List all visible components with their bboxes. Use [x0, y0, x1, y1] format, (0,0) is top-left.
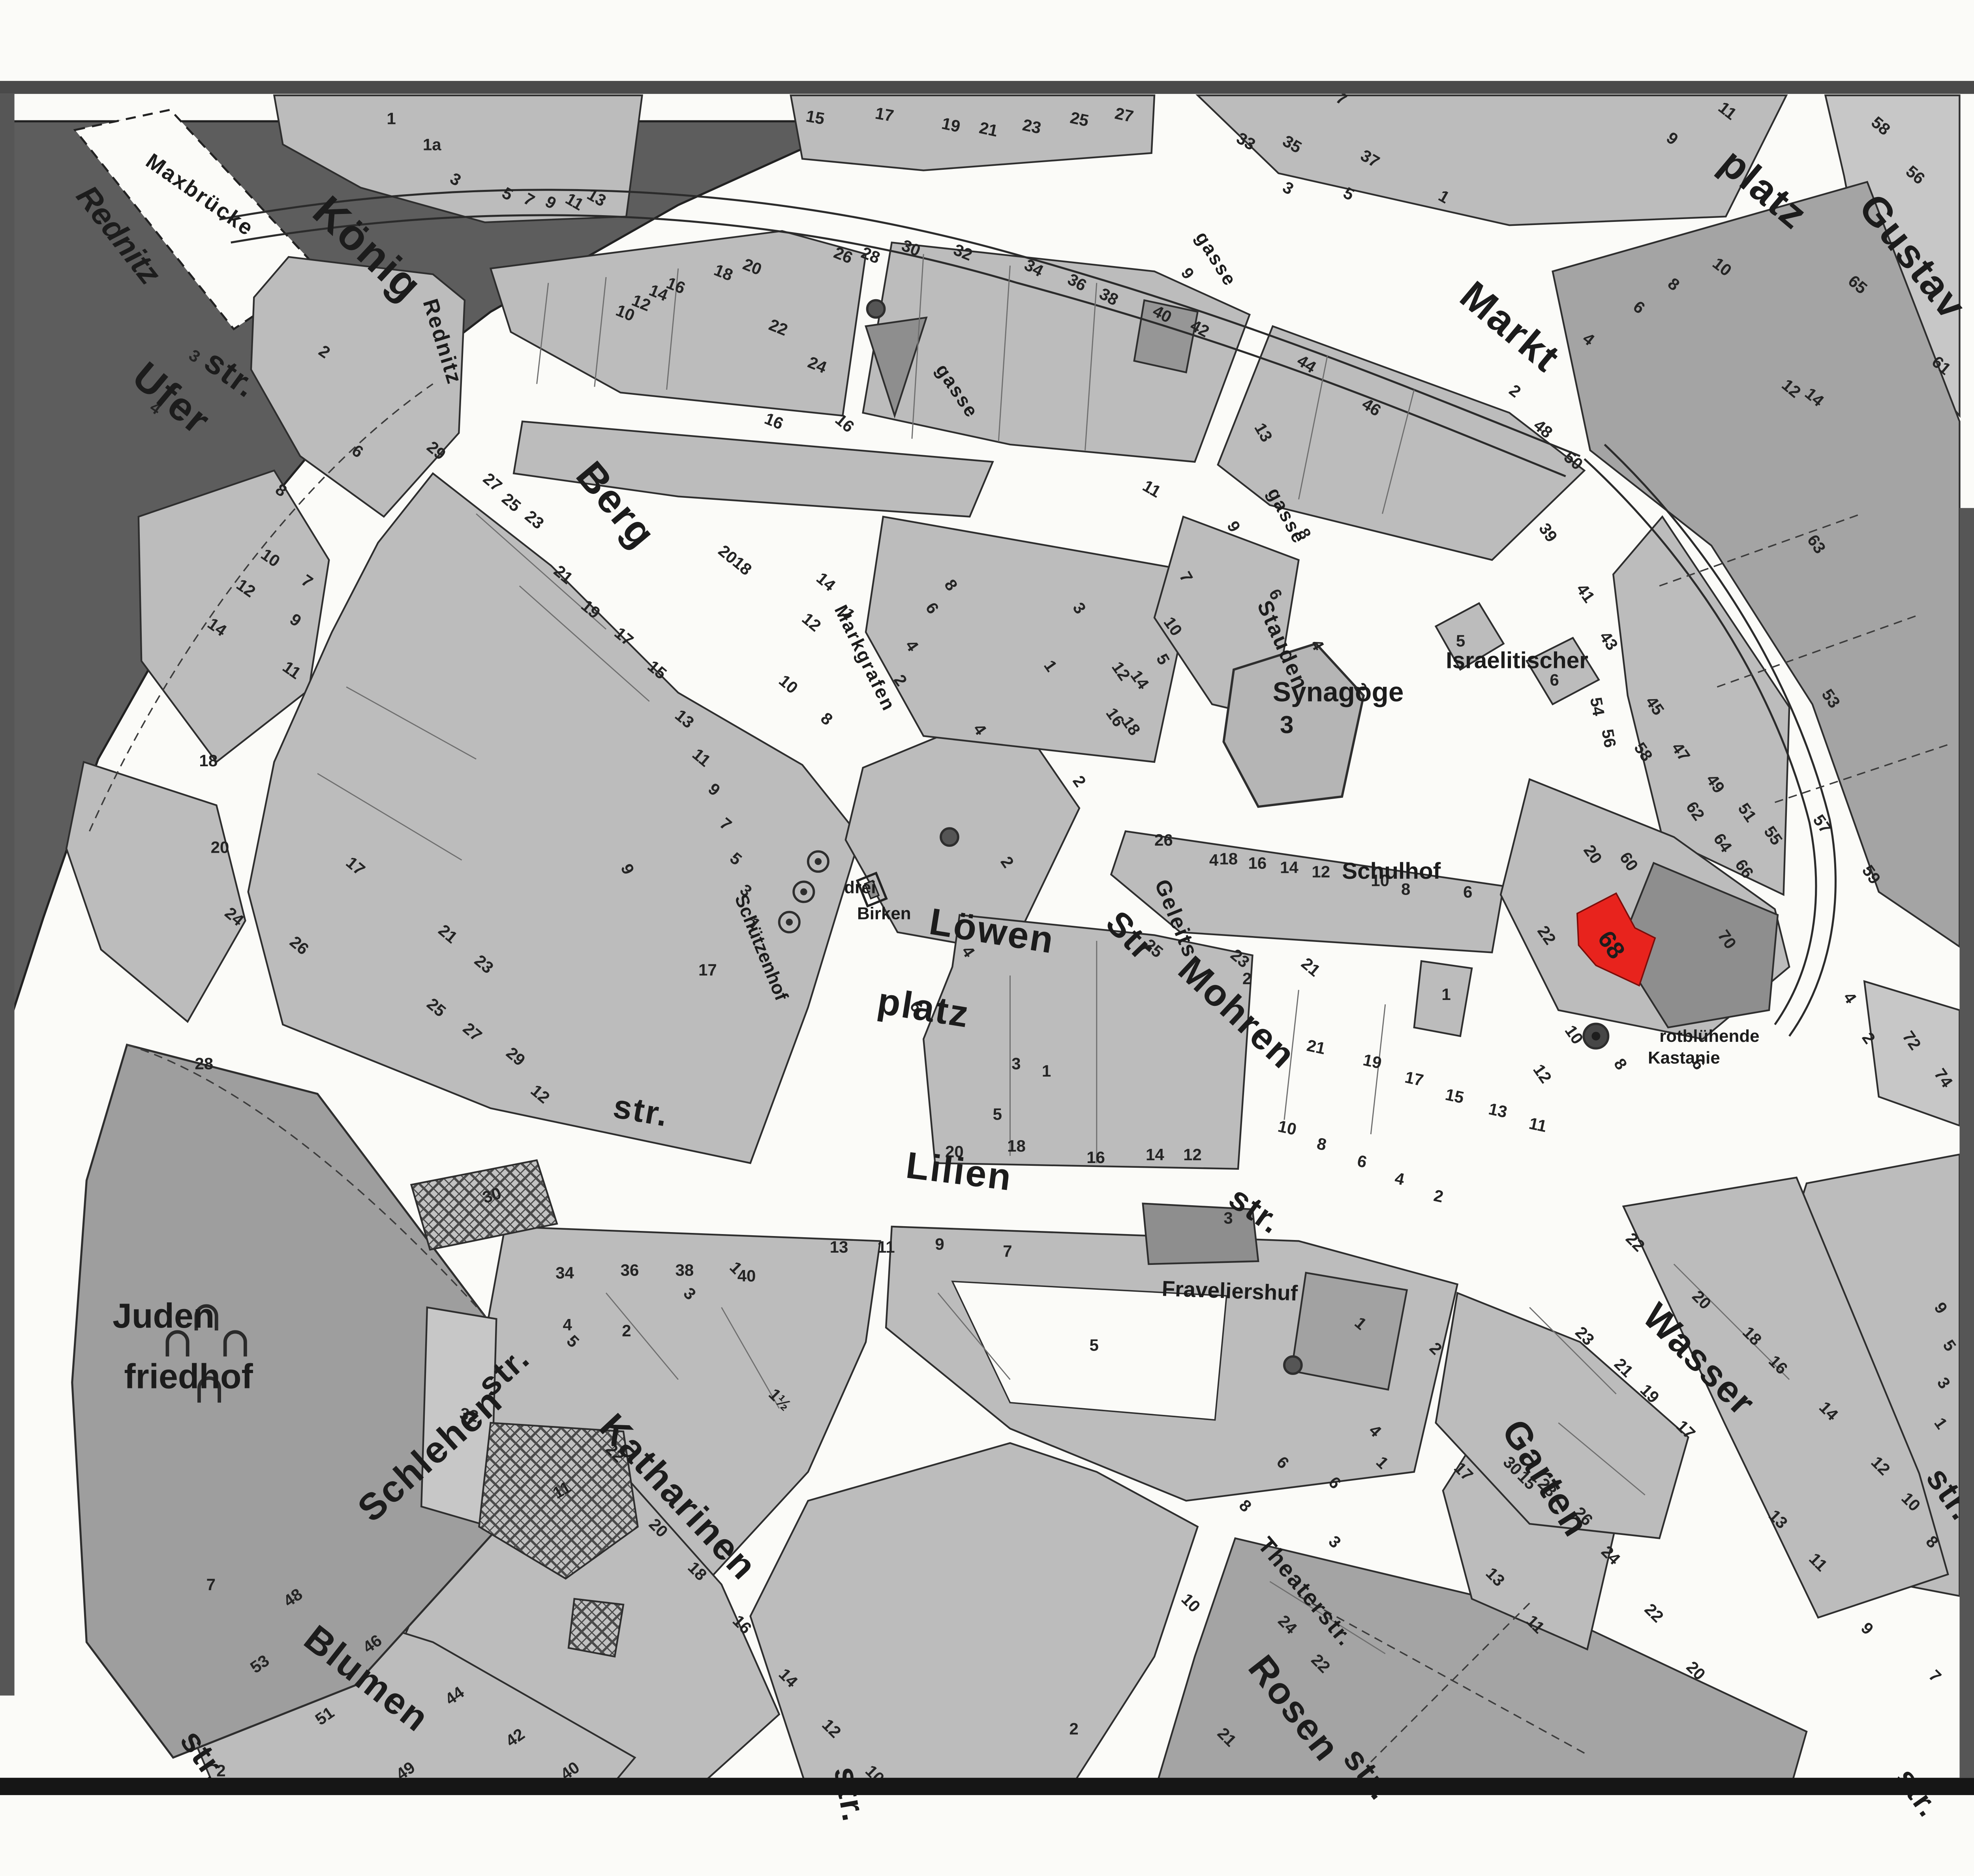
house-number: 14: [1280, 858, 1298, 877]
house-number: 12: [1183, 1145, 1202, 1164]
hatched-parcel-small: [569, 1599, 623, 1657]
birch-tree-icon: [800, 888, 807, 895]
house-number: 3: [1325, 1532, 1345, 1552]
house-number: 13: [1487, 1099, 1509, 1122]
house-number: 20: [211, 838, 229, 856]
house-number: 9: [935, 1234, 944, 1253]
city-block: [1198, 95, 1786, 225]
place-label: Israelitischer: [1446, 648, 1588, 673]
place-label: drei: [844, 878, 876, 897]
place-label: rotblühende: [1659, 1026, 1759, 1046]
house-number: 12: [799, 609, 825, 635]
house-number: 28: [195, 1054, 213, 1073]
house-number: 19: [940, 114, 962, 136]
house-number: 1: [1441, 985, 1450, 1004]
street-label: Markt: [1452, 272, 1569, 381]
place-label: friedhof: [124, 1357, 253, 1396]
house-number: 38: [676, 1261, 694, 1279]
house-number: 25: [1068, 108, 1090, 130]
house-number: 7: [1925, 1666, 1945, 1686]
house-number: 6: [1463, 883, 1472, 901]
house-number: 9: [1177, 264, 1198, 282]
city-block: [791, 95, 1154, 170]
house-number: 11: [1527, 1114, 1548, 1135]
house-number: 1a: [423, 135, 441, 154]
house-number: 11: [877, 1238, 895, 1256]
house-number: 14: [1146, 1145, 1164, 1164]
house-number: 10: [1178, 1590, 1204, 1616]
place-label: Kastanie: [1648, 1048, 1720, 1067]
house-number: 56: [1598, 728, 1619, 749]
house-number: 26: [1154, 831, 1173, 849]
house-number: 17: [1403, 1067, 1425, 1090]
house-number: 3: [1280, 178, 1297, 198]
house-number: 5: [1090, 1336, 1099, 1354]
house-number: 8: [1610, 1055, 1631, 1073]
house-number: 25: [498, 489, 524, 515]
house-number: 7: [206, 1575, 216, 1594]
place-label: Schulhof: [1342, 858, 1441, 884]
place-label: 3: [1280, 711, 1294, 739]
house-number: 16: [762, 409, 786, 433]
house-number: 9: [1858, 1619, 1877, 1638]
place-label: Fraveliershuf: [1162, 1276, 1298, 1305]
house-number: 18: [1219, 850, 1238, 868]
chestnut-tree-icon: [1591, 1032, 1600, 1041]
house-number: 6: [1356, 1151, 1369, 1171]
city-block: [1864, 981, 1959, 1126]
house-number: 15: [1444, 1085, 1465, 1107]
house-number: 10: [775, 671, 801, 697]
house-number: 23: [1021, 115, 1043, 137]
house-number: 19: [1361, 1050, 1383, 1072]
house-number: 23: [522, 507, 548, 533]
house-number: 39: [1535, 520, 1561, 545]
house-number: 16: [1248, 854, 1267, 872]
birch-tree-icon: [786, 919, 793, 926]
house-number: 12: [1529, 1061, 1555, 1086]
birch-tree-icon: [815, 858, 822, 865]
tree-icon: [941, 828, 958, 846]
house-number: 54: [1587, 696, 1608, 718]
house-number: 36: [621, 1261, 639, 1279]
house-number: 27: [1113, 104, 1135, 126]
house-number: 21: [1305, 1036, 1327, 1058]
house-number: 11: [1140, 476, 1164, 501]
house-number: 5: [993, 1105, 1002, 1124]
house-number: 14: [813, 568, 839, 595]
house-number: 22: [1641, 1600, 1667, 1626]
house-number: 18: [199, 751, 218, 770]
house-number: 4: [1840, 989, 1860, 1007]
tree-icon: [1284, 1356, 1302, 1374]
house-number: 18: [1007, 1137, 1026, 1155]
house-number: 13: [830, 1238, 848, 1256]
street-label: gasse: [1191, 228, 1241, 290]
house-number: 1: [1042, 1062, 1051, 1080]
city-block: [66, 762, 245, 1022]
house-number: 1: [387, 109, 396, 128]
house-number: 21: [978, 118, 999, 140]
house-number: 2: [1432, 1186, 1445, 1206]
house-number: 43: [1596, 628, 1621, 653]
house-number: 2: [1506, 381, 1524, 401]
house-number: 4: [1209, 851, 1219, 869]
house-number: 8: [1236, 1496, 1255, 1516]
house-number: 3: [1011, 1054, 1021, 1073]
house-number: 17: [874, 104, 895, 125]
house-number: 4: [1393, 1169, 1406, 1189]
house-number: 2: [1069, 1720, 1078, 1738]
house-number: 41: [1573, 580, 1599, 606]
house-number: 16: [1086, 1148, 1105, 1167]
house-number: 8: [1315, 1134, 1328, 1154]
city-block: [751, 1443, 1198, 1792]
house-number: 4: [563, 1315, 572, 1334]
building-1-dark: [1291, 1273, 1407, 1390]
house-number: 7: [1003, 1242, 1012, 1261]
city-map-canvas: 68 11a3579111315171921232527333537351758…: [0, 0, 1974, 1876]
tree-icon: [867, 300, 885, 318]
house-number: 8: [817, 709, 836, 729]
place-label: Synagoge: [1273, 677, 1404, 707]
house-number: 2: [1069, 772, 1090, 790]
house-number: 15: [805, 107, 826, 128]
house-number: 10: [1276, 1117, 1298, 1139]
house-number: 9: [1223, 518, 1244, 535]
house-number: 27: [480, 469, 506, 495]
house-number: 10: [1561, 1022, 1587, 1047]
house-number: 2: [622, 1321, 631, 1340]
house-number: 2: [1242, 969, 1252, 988]
house-number: 34: [555, 1264, 574, 1282]
house-number: 12: [1312, 862, 1330, 881]
place-label: Birken: [857, 904, 911, 923]
place-label: Juden: [113, 1296, 214, 1335]
house-number: 17: [698, 961, 717, 979]
house-number: 21: [1298, 954, 1324, 980]
